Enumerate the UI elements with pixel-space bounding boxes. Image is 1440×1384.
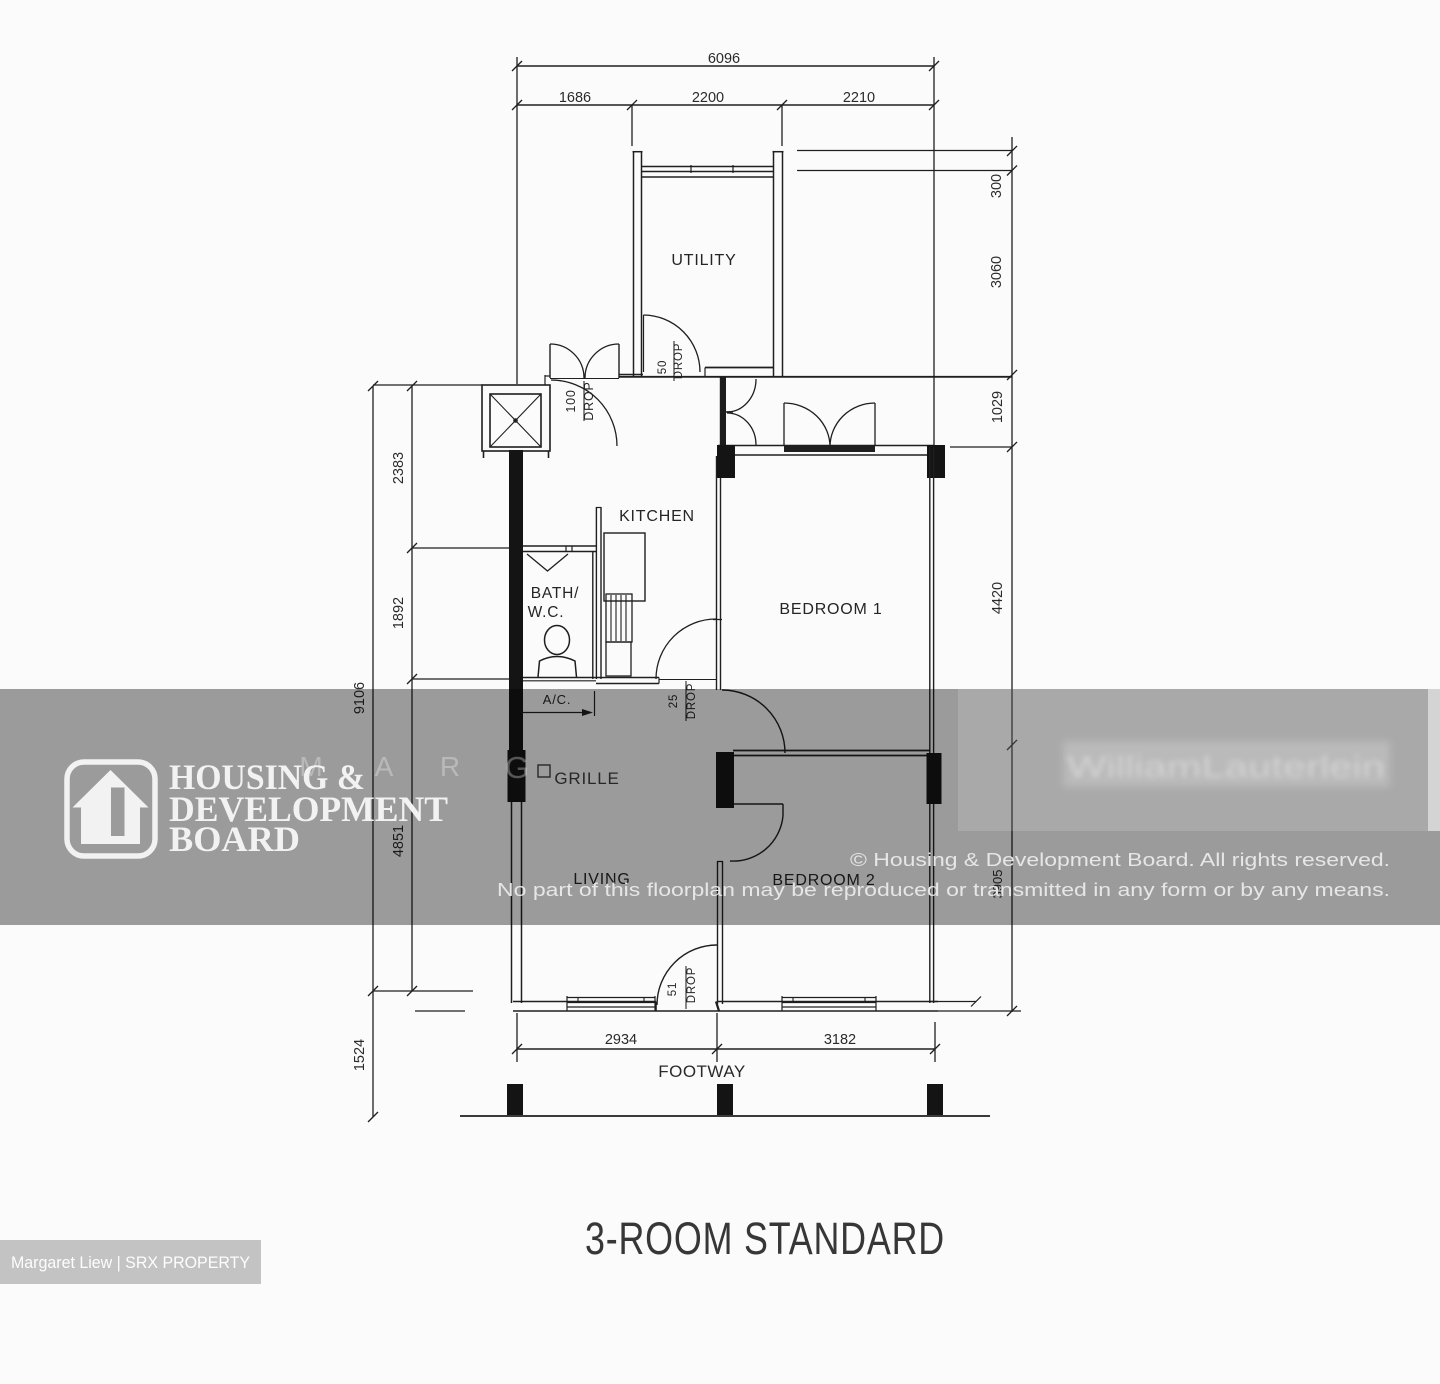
svg-text:DROP: DROP	[686, 967, 698, 1003]
svg-text:2200: 2200	[692, 90, 724, 106]
svg-text:2210: 2210	[843, 90, 875, 106]
svg-text:2934: 2934	[605, 1032, 637, 1048]
svg-text:100: 100	[564, 389, 578, 412]
svg-text:3060: 3060	[989, 256, 1005, 288]
svg-text:WilliamLauterlein: WilliamLauterlein	[1067, 749, 1385, 784]
svg-text:3182: 3182	[824, 1032, 856, 1048]
svg-text:G: G	[505, 750, 529, 785]
svg-text:UTILITY: UTILITY	[671, 252, 736, 269]
svg-text:Margaret Liew | SRX PROPERTY: Margaret Liew | SRX PROPERTY	[11, 1254, 250, 1272]
svg-text:BATH/: BATH/	[531, 585, 580, 602]
svg-text:KITCHEN: KITCHEN	[619, 508, 695, 525]
svg-text:© Housing & Development Board.: © Housing & Development Board. All right…	[850, 849, 1390, 870]
svg-text:1892: 1892	[391, 597, 407, 629]
svg-text:6096: 6096	[708, 51, 740, 67]
svg-text:No part of this floorplan may: No part of this floorplan may be reprodu…	[497, 879, 1390, 900]
svg-text:DROP: DROP	[673, 343, 685, 379]
svg-text:300: 300	[989, 174, 1005, 198]
svg-text:DROP: DROP	[582, 381, 596, 420]
svg-text:51: 51	[667, 982, 679, 996]
svg-text:1524: 1524	[352, 1039, 368, 1071]
svg-text:1029: 1029	[990, 391, 1006, 423]
svg-text:W.C.: W.C.	[528, 604, 565, 621]
svg-text:2383: 2383	[391, 452, 407, 484]
svg-text:FOOTWAY: FOOTWAY	[658, 1062, 746, 1081]
svg-text:A: A	[375, 751, 394, 782]
svg-text:3-ROOM STANDARD: 3-ROOM STANDARD	[585, 1213, 945, 1264]
svg-text:50: 50	[657, 360, 669, 374]
svg-text:BEDROOM 1: BEDROOM 1	[779, 601, 882, 618]
svg-text:BOARD: BOARD	[169, 819, 300, 859]
svg-text:1686: 1686	[559, 90, 591, 106]
svg-text:4420: 4420	[990, 582, 1006, 614]
svg-text:R: R	[440, 751, 460, 782]
